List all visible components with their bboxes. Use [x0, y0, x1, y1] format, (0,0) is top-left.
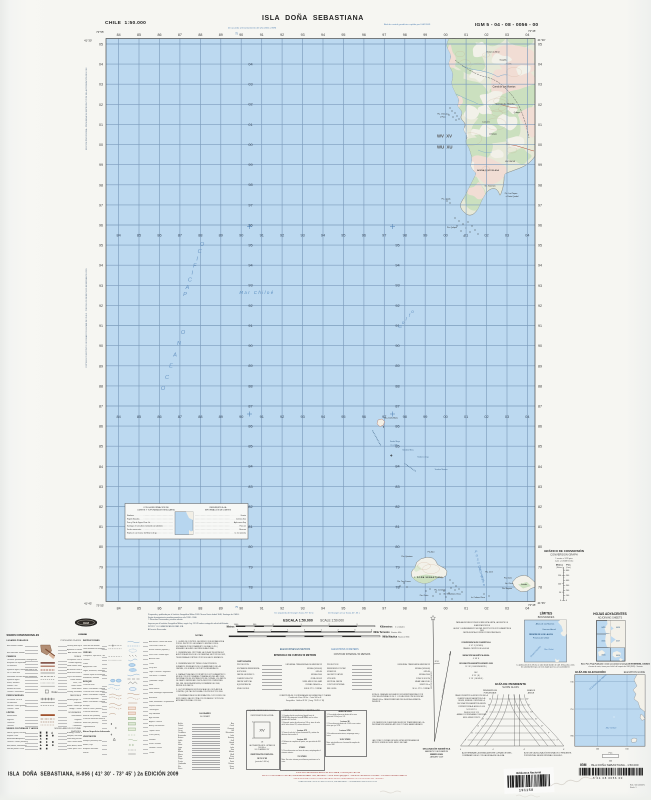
svg-text:79: 79	[538, 565, 542, 569]
svg-text:84: 84	[116, 234, 120, 238]
svg-text:95: 95	[341, 607, 345, 611]
svg-text:88: 88	[248, 384, 252, 388]
svg-text:41°30': 41°30'	[538, 38, 546, 42]
svg-text:78: 78	[99, 586, 103, 590]
svg-text:88: 88	[198, 415, 202, 419]
svg-text:REFERENTE A LA: REFERENTE A LA	[210, 506, 227, 509]
svg-text:I. DOÑA SEBASTIANA: I. DOÑA SEBASTIANA	[414, 576, 443, 579]
svg-text:CONVERSION GRAPH: CONVERSION GRAPH	[550, 553, 578, 557]
svg-text:Limpiapa: Limpiapa	[489, 134, 498, 136]
svg-text:99: 99	[423, 234, 427, 238]
svg-text:88: 88	[198, 33, 202, 37]
svg-text:81: 81	[538, 525, 542, 529]
svg-text:84: 84	[248, 465, 252, 469]
svg-text:Grande: Grande	[521, 583, 527, 586]
svg-text:LÍMITES Y TOPONÍMIA DE ESTA CA: LÍMITES Y TOPONÍMIA DE ESTA CARTA	[137, 508, 175, 511]
svg-text:96: 96	[362, 607, 366, 611]
svg-text:(c.a.) 4B: (c.a.) 4B	[391, 444, 399, 446]
svg-text:83: 83	[248, 485, 252, 489]
svg-text:Milla Náutica: Milla Náutica	[383, 635, 398, 638]
svg-text:90: 90	[248, 344, 252, 348]
svg-text:98: 98	[403, 415, 407, 419]
svg-text:Sendero Mina: Sendero Mina	[402, 449, 413, 451]
svg-text:85: 85	[137, 415, 141, 419]
svg-text:00: 00	[444, 33, 448, 37]
svg-text:Pta. Chéquica: Pta. Chéquica	[437, 113, 448, 116]
svg-text:18: 18	[261, 742, 264, 744]
svg-text:Nautical Mile: Nautical Mile	[398, 635, 410, 638]
svg-text:96: 96	[99, 224, 103, 228]
svg-text:98: 98	[248, 183, 252, 187]
svg-text:01: 01	[538, 123, 542, 127]
svg-text:75: 75	[235, 605, 238, 609]
svg-text:92: 92	[280, 415, 284, 419]
svg-text:SCALE 1:50.000: SCALE 1:50.000	[320, 618, 344, 622]
svg-text:93: 93	[248, 284, 252, 288]
svg-text:85: 85	[137, 607, 141, 611]
svg-text:95: 95	[99, 244, 103, 248]
svg-text:89: 89	[219, 33, 223, 37]
svg-text:90: 90	[239, 33, 243, 37]
svg-text:Sonda Maya: Sonda Maya	[390, 441, 400, 443]
svg-text:89: 89	[99, 364, 103, 368]
svg-text:0: 0	[252, 738, 254, 740]
svg-text:87: 87	[178, 234, 182, 238]
svg-text:02: 02	[484, 234, 488, 238]
svg-text:Mar Chiloé: Mar Chiloé	[544, 648, 553, 651]
svg-text:87: 87	[248, 404, 252, 408]
svg-text:89: 89	[248, 364, 252, 368]
svg-text:200: 200	[566, 590, 569, 592]
svg-text:86: 86	[538, 425, 542, 429]
svg-text:780: 780	[570, 736, 574, 738]
svg-text:01: 01	[464, 33, 468, 37]
svg-text:41°45': 41°45'	[538, 601, 546, 605]
svg-text:Pta. Bayona: Pta. Bayona	[502, 587, 512, 590]
svg-text:84: 84	[117, 607, 121, 611]
svg-text:91: 91	[99, 324, 103, 328]
svg-text:01: 01	[464, 607, 468, 611]
svg-text:94: 94	[538, 264, 542, 268]
svg-text:84: 84	[117, 33, 121, 37]
svg-text:96: 96	[538, 224, 542, 228]
svg-text:84: 84	[538, 465, 542, 469]
svg-text:95: 95	[248, 244, 252, 248]
svg-text:Estancia Brun: Estancia Brun	[486, 51, 500, 54]
svg-text:Red de control geodésico supli: Red de control geodésico suplida por IGM…	[384, 23, 431, 26]
svg-text:5 04 08 0056 00: 5 04 08 0056 00	[593, 776, 623, 780]
svg-text:78: 78	[538, 586, 542, 590]
svg-text:Obra con: Obra con	[239, 528, 246, 531]
svg-text:84: 84	[116, 415, 120, 419]
svg-text:VACONCHI: VACONCHI	[505, 160, 515, 163]
svg-text:73°55': 73°55'	[96, 604, 104, 608]
svg-text:100: 100	[566, 595, 569, 597]
svg-text:NORTE GEOGRÁFICO: NORTE GEOGRÁFICO	[430, 670, 433, 688]
svg-text:96: 96	[362, 234, 366, 238]
svg-text:89: 89	[219, 607, 223, 611]
svg-text:WU XU: WU XU	[437, 145, 453, 150]
svg-text:95: 95	[341, 33, 345, 37]
svg-text:0: 0	[460, 749, 461, 751]
svg-text:100: 100	[596, 749, 600, 751]
svg-text:00: 00	[538, 143, 542, 147]
svg-text:84: 84	[99, 465, 103, 469]
svg-text:Pta. Arci: Pta. Arci	[428, 551, 435, 554]
svg-text:Replica m con marea: los Miran: Replica m con marea: los Miran s de ga	[127, 532, 157, 535]
svg-text:DECLINACIÓN MAGNÉTICA: DECLINACIÓN MAGNÉTICA	[423, 747, 451, 750]
svg-text:93: 93	[538, 284, 542, 288]
svg-text:81: 81	[248, 525, 252, 529]
svg-text:150: 150	[558, 575, 561, 577]
svg-text:400: 400	[566, 580, 569, 582]
svg-text:o Plaza: o Plaza	[440, 116, 446, 118]
svg-text:Pta. Chala: Pta. Chala	[420, 594, 428, 597]
svg-text:NORTE MAGNÉTICO: NORTE MAGNÉTICO	[441, 681, 447, 699]
svg-text:93: 93	[301, 607, 305, 611]
svg-text:85: 85	[248, 445, 252, 449]
svg-text:85: 85	[137, 234, 141, 238]
svg-text:500: 500	[566, 575, 569, 577]
svg-text:97: 97	[538, 203, 542, 207]
svg-text:01: 01	[464, 234, 468, 238]
svg-text:03: 03	[505, 415, 509, 419]
svg-text:Pta. Doris: Pta. Doris	[504, 577, 512, 580]
svg-text:82: 82	[248, 505, 252, 509]
svg-text:95: 95	[538, 244, 542, 248]
svg-text:Pta. Quintana: Pta. Quintana	[402, 555, 413, 558]
svg-text:Región: Ancudia: Región: Ancudia	[127, 518, 139, 521]
svg-text:191158: 191158	[519, 788, 534, 793]
svg-text:A: A	[172, 352, 177, 358]
svg-text:90: 90	[239, 234, 243, 238]
svg-text:79: 79	[248, 565, 252, 569]
svg-text:91: 91	[260, 33, 264, 37]
svg-text:ADJOINING SHEETS: ADJOINING SHEETS	[598, 616, 623, 619]
svg-text:04: 04	[99, 63, 103, 67]
svg-text:86: 86	[157, 415, 161, 419]
svg-text:83: 83	[395, 485, 399, 489]
svg-text:91: 91	[248, 324, 252, 328]
svg-text:F: F	[193, 263, 197, 269]
svg-text:Corral de Los Muertos: Corral de Los Muertos	[493, 86, 517, 89]
svg-text:E: E	[169, 364, 173, 370]
svg-text:98: 98	[538, 183, 542, 187]
svg-text:82: 82	[99, 505, 103, 509]
svg-text:95: 95	[341, 415, 345, 419]
svg-text:87: 87	[178, 33, 182, 37]
svg-text:Pta. Quilque: Pta. Quilque	[447, 226, 457, 229]
svg-text:12°: 12°	[541, 726, 544, 728]
svg-text:78: 78	[395, 585, 399, 589]
svg-text:CON LA INFORMACIÓN DE: CON LA INFORMACIÓN DE	[143, 506, 169, 509]
svg-text:Quilque: Quilque	[514, 112, 521, 114]
svg-text:(Meters): (Meters)	[556, 566, 563, 569]
svg-text:92: 92	[280, 234, 284, 238]
svg-text:PORCENTAJE: PORCENTAJE	[484, 691, 497, 694]
svg-text:Cr. me Questra: Cr. me Questra	[235, 532, 247, 535]
svg-text:Milla Terrestre: Milla Terrestre	[374, 631, 391, 634]
svg-text:de autoridad de mapa con esta: de autoridad de mapa con esta región que…	[521, 666, 570, 669]
svg-text:Rca. Doña María: Rca. Doña María	[384, 416, 398, 419]
svg-text:97: 97	[99, 203, 103, 207]
svg-text:89: 89	[219, 415, 223, 419]
svg-text:IGM: IGM	[83, 621, 89, 625]
svg-text:o: o	[402, 320, 405, 325]
svg-text:0555: 0555	[602, 641, 606, 643]
svg-text:81: 81	[99, 525, 103, 529]
svg-text:04: 04	[525, 607, 529, 611]
svg-text:Statute Mile: Statute Mile	[391, 631, 402, 634]
svg-text:Comuna: Ancud: Comuna: Ancud	[542, 628, 555, 631]
svg-text:00: 00	[248, 143, 252, 147]
svg-text:97: 97	[382, 234, 386, 238]
svg-text:Mar Chiloé: Mar Chiloé	[239, 290, 274, 295]
svg-text:PORCENTUAL SEGÚN INTERVALO ELE: PORCENTUAL SEGÚN INTERVALO ELEGIDO.	[524, 754, 563, 757]
svg-text:97: 97	[382, 607, 386, 611]
svg-text:Para ver: Para ver	[240, 525, 247, 528]
svg-text:93: 93	[300, 415, 304, 419]
svg-text:88: 88	[395, 384, 399, 388]
svg-text:91: 91	[260, 607, 264, 611]
svg-text:93: 93	[301, 33, 305, 37]
svg-text:98: 98	[403, 33, 407, 37]
svg-text:88: 88	[198, 607, 202, 611]
svg-text:GUÍA DE ELEVACIÓN: GUÍA DE ELEVACIÓN	[575, 669, 606, 674]
svg-text:86: 86	[158, 607, 162, 611]
svg-text:9°: 9°	[548, 733, 550, 735]
svg-text:MAGNETIC DECLINATION: MAGNETIC DECLINATION	[425, 750, 449, 753]
svg-text:96: 96	[362, 415, 366, 419]
svg-text:15: 15	[471, 733, 473, 735]
svg-text:99: 99	[538, 163, 542, 167]
svg-text:95: 95	[341, 234, 345, 238]
svg-text:Pta. Aguda: Pta. Aguda	[442, 198, 451, 201]
svg-text:73°55': 73°55'	[96, 30, 104, 34]
svg-text:89: 89	[219, 234, 223, 238]
svg-text:6°: 6°	[557, 740, 559, 742]
svg-text:00: 00	[443, 415, 447, 419]
svg-text:REGIÓN DE LOS LAGOS: REGIÓN DE LOS LAGOS	[529, 633, 553, 636]
svg-text:96: 96	[362, 33, 366, 37]
svg-text:IGM: IGM	[580, 763, 587, 767]
svg-text:90: 90	[538, 344, 542, 348]
svg-text:92: 92	[99, 304, 103, 308]
svg-text:94: 94	[321, 415, 325, 419]
svg-text:WV XV: WV XV	[437, 134, 452, 139]
svg-text:85: 85	[538, 445, 542, 449]
svg-text:99: 99	[423, 607, 427, 611]
svg-text:94: 94	[321, 33, 325, 37]
svg-text:02: 02	[99, 103, 103, 107]
svg-text:95: 95	[395, 244, 399, 248]
svg-text:Aqla carera Sup: Aqla carera Sup	[234, 521, 246, 524]
svg-text:80: 80	[99, 545, 103, 549]
svg-text:0°: 0°	[563, 749, 565, 751]
svg-text:740: 740	[570, 681, 574, 683]
svg-text:03: 03	[248, 83, 252, 87]
svg-text:86: 86	[395, 425, 399, 429]
svg-text:99: 99	[423, 415, 427, 419]
svg-text:97: 97	[382, 33, 386, 37]
svg-text:84: 84	[395, 465, 399, 469]
svg-text:78: 78	[248, 585, 252, 589]
svg-text:04: 04	[248, 63, 252, 67]
svg-text:41°30': 41°30'	[84, 39, 92, 43]
svg-text:0: 0	[566, 600, 567, 602]
svg-text:04: 04	[525, 415, 529, 419]
svg-text:Kilómetros: Kilómetros	[380, 626, 393, 629]
svg-text:02: 02	[248, 103, 252, 107]
svg-text:710: 710	[570, 709, 574, 711]
svg-text:90: 90	[239, 607, 243, 611]
svg-text:Altura de Los Muertos: Altura de Los Muertos	[536, 622, 555, 625]
svg-text:Gn. Chico: Gn. Chico	[505, 583, 513, 585]
svg-text:94: 94	[99, 264, 103, 268]
svg-text:04: 04	[538, 63, 542, 67]
svg-text:02: 02	[485, 607, 489, 611]
svg-text:Teodoro verga: Teodoro verga	[417, 457, 429, 459]
svg-text:A: A	[185, 285, 190, 291]
svg-text:Pies: Pies	[609, 752, 613, 754]
svg-text:Mar Chiloé: Mar Chiloé	[606, 728, 617, 730]
svg-text:O: O	[181, 330, 186, 336]
svg-text:83: 83	[99, 485, 103, 489]
svg-text:92: 92	[280, 607, 284, 611]
svg-text:SLOPE GLASS: SLOPE GLASS	[502, 686, 519, 689]
svg-text:03: 03	[505, 234, 509, 238]
svg-text:82: 82	[538, 505, 542, 509]
svg-text:92: 92	[248, 304, 252, 308]
svg-text:96: 96	[248, 223, 252, 227]
svg-text:9: 9	[465, 740, 466, 742]
svg-text:Pta. Tres Cruces: Pta. Tres Cruces	[397, 580, 410, 583]
svg-text:Pta. Doril: Pta. Doril	[485, 571, 493, 574]
svg-text:Pta. Los Piques: Pta. Los Piques	[505, 192, 518, 195]
svg-text:91: 91	[538, 324, 542, 328]
svg-text:87: 87	[99, 405, 103, 409]
svg-text:01: 01	[464, 415, 468, 419]
svg-text:86: 86	[158, 33, 162, 37]
svg-text:24°: 24°	[526, 699, 529, 701]
svg-text:83: 83	[538, 485, 542, 489]
svg-text:o: o	[411, 309, 414, 314]
svg-text:80: 80	[395, 545, 399, 549]
svg-text:99: 99	[248, 163, 252, 167]
svg-text:ESCALA 1:50.000: ESCALA 1:50.000	[283, 618, 313, 622]
svg-text:a Punta Quedal: a Punta Quedal	[506, 195, 519, 198]
svg-text:4: 4	[493, 749, 494, 751]
svg-text:98: 98	[403, 607, 407, 611]
svg-text:0455: 0455	[602, 627, 606, 629]
svg-text:87: 87	[538, 405, 542, 409]
svg-text:Fuente: Fuente	[241, 514, 246, 517]
svg-text:87: 87	[178, 415, 182, 419]
svg-text:Santiago: el Consultivo; Coman: Santiago: el Consultivo; Comando con ade…	[127, 525, 163, 528]
svg-text:GRÁFICO DE CONVERSIÓN: GRÁFICO DE CONVERSIÓN	[544, 548, 584, 553]
svg-text:79: 79	[395, 565, 399, 569]
svg-text:al aviso de carta, úsese por: al aviso de carta, úsese por el teléf. d…	[588, 665, 642, 668]
svg-text:90: 90	[395, 344, 399, 348]
svg-text:93: 93	[99, 284, 103, 288]
svg-text:15°: 15°	[535, 719, 538, 721]
svg-text:91: 91	[260, 415, 264, 419]
svg-text:93: 93	[395, 284, 399, 288]
svg-text:88: 88	[538, 384, 542, 388]
svg-text:Comuna Gas: Comuna Gas	[236, 519, 246, 521]
svg-text:JANUARY 2009: JANUARY 2009	[430, 755, 444, 758]
svg-text:94: 94	[248, 264, 252, 268]
svg-text:600: 600	[566, 570, 569, 572]
svg-text:88: 88	[99, 384, 103, 388]
svg-text:86: 86	[99, 425, 103, 429]
svg-text:02: 02	[485, 33, 489, 37]
svg-text:Provincia de Chiloé: Provincia de Chiloé	[533, 636, 549, 639]
svg-text:04: 04	[525, 234, 529, 238]
svg-text:97: 97	[248, 203, 252, 207]
svg-text:O: O	[161, 386, 166, 392]
svg-text:03: 03	[538, 83, 542, 87]
svg-text:80: 80	[538, 545, 542, 549]
svg-text:82: 82	[395, 505, 399, 509]
svg-text:HOJAS ADYACENTES: HOJAS ADYACENTES	[593, 612, 626, 616]
svg-text:02: 02	[538, 103, 542, 107]
svg-text:21°: 21°	[528, 705, 531, 707]
svg-text:COMPARAR LUEGO CON LA ESCALA D: COMPARAR LUEGO CON LA ESCALA DE LA GUÍA.	[462, 754, 505, 757]
svg-text:INFORMACIÓN DE LÍMITES: INFORMACIÓN DE LÍMITES	[205, 508, 232, 511]
svg-text:Prov. y Rio de Figura: Pros. G: Prov. y Rio de Figura: Pros. Gr.	[127, 521, 151, 524]
svg-text:99: 99	[99, 163, 103, 167]
svg-text:0655: 0655	[602, 655, 606, 657]
svg-text:91: 91	[260, 234, 264, 238]
svg-text:ANGLE: ANGLE	[528, 691, 535, 694]
svg-text:00: 00	[99, 143, 103, 147]
svg-text:0456: 0456	[616, 627, 620, 629]
svg-text:86: 86	[248, 425, 252, 429]
svg-text:85: 85	[137, 33, 141, 37]
svg-text:21: 21	[477, 726, 479, 728]
svg-text:93: 93	[300, 234, 304, 238]
svg-text:73°45': 73°45'	[528, 603, 536, 607]
svg-text:50: 50	[559, 592, 561, 594]
svg-text:1 metro = 3.28 pies: 1 metro = 3.28 pies	[555, 557, 572, 560]
svg-text:89: 89	[538, 364, 542, 368]
svg-text:94: 94	[321, 607, 325, 611]
svg-text:92: 92	[538, 304, 542, 308]
svg-text:01: 01	[248, 123, 252, 127]
svg-text:0656: 0656	[616, 655, 620, 657]
svg-text:0: 0	[560, 600, 561, 602]
svg-text:87: 87	[395, 404, 399, 408]
svg-text:00: 00	[443, 234, 447, 238]
svg-text:88: 88	[198, 234, 202, 238]
svg-text:90: 90	[99, 344, 103, 348]
svg-text:18°: 18°	[530, 712, 533, 714]
svg-text:(Feet): (Feet)	[566, 566, 571, 569]
svg-text:300: 300	[566, 585, 569, 587]
svg-text:41°45': 41°45'	[84, 602, 92, 606]
svg-text:05: 05	[538, 43, 542, 47]
svg-text:ARENA DESPOBLADA: ARENA DESPOBLADA	[477, 169, 499, 172]
svg-text:89: 89	[395, 364, 399, 368]
svg-text:Teodoro Moreno: Teodoro Moreno	[434, 469, 447, 471]
svg-text:2 unidades: 2 unidades	[395, 627, 405, 629]
svg-text:P: P	[183, 292, 187, 298]
svg-text:85: 85	[99, 445, 103, 449]
svg-text:O: O	[200, 242, 205, 248]
svg-text:Del margen al sur hasta 41° 45: Del margen al sur hasta 41° 45 s	[328, 612, 361, 615]
svg-text:LÍMITES: LÍMITES	[540, 611, 553, 616]
